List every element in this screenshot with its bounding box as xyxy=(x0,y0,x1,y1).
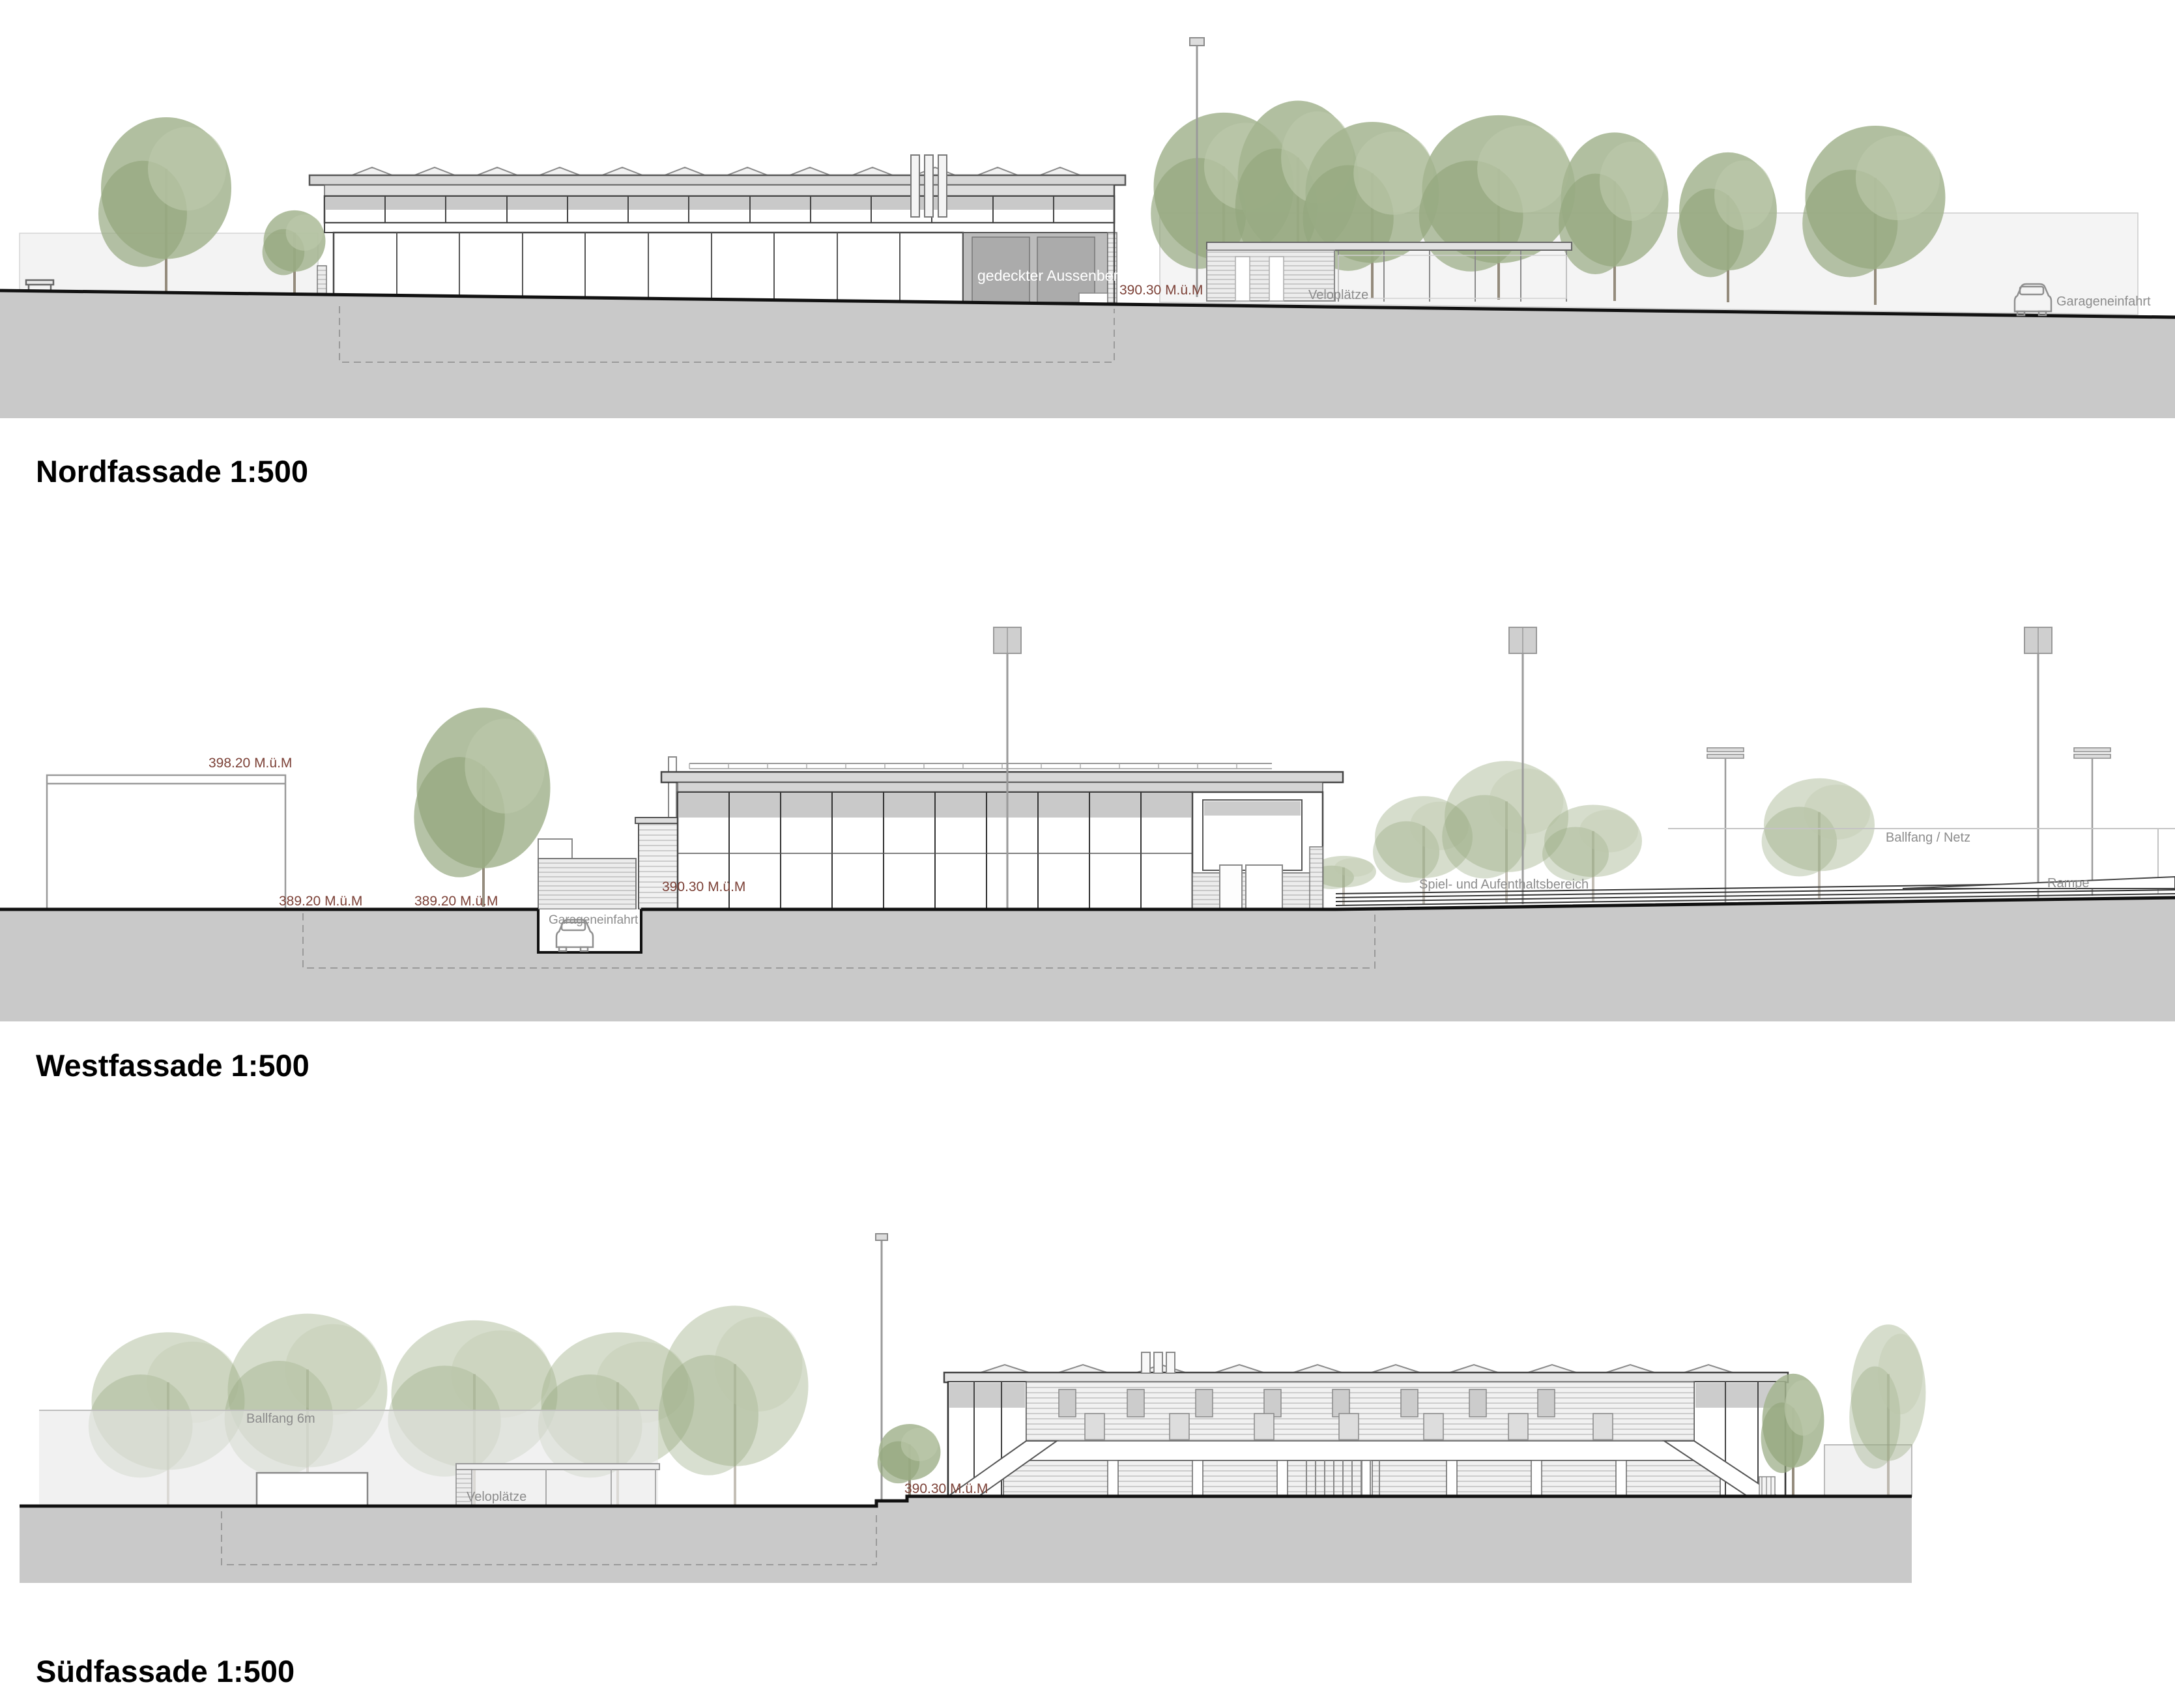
tree-crown xyxy=(1579,810,1638,853)
corner-slat xyxy=(317,266,326,297)
window xyxy=(1401,1389,1418,1417)
tree-crown xyxy=(465,719,545,814)
window xyxy=(1170,1414,1189,1440)
window xyxy=(1469,1389,1486,1417)
tree-crown xyxy=(901,1428,938,1461)
chimney xyxy=(669,757,676,819)
net-post-head xyxy=(1707,748,1744,752)
shelter-opening xyxy=(1235,257,1250,301)
label-level-39030-west: 390.30 M.ü.M xyxy=(662,879,745,894)
floor-slab xyxy=(324,223,1114,233)
roof-fascia xyxy=(661,772,1343,782)
wing-window-shade xyxy=(1204,801,1301,816)
label-garageneinfahrt-west: Garageneinfahrt xyxy=(549,913,639,927)
tree-crown xyxy=(1600,141,1664,221)
window xyxy=(1264,1389,1281,1417)
roof-band xyxy=(678,782,1323,792)
entry-glazing xyxy=(1246,865,1282,909)
label-spielbereich: Spiel- und Aufenthaltsbereich xyxy=(1419,877,1589,892)
roof-sawtooth xyxy=(352,167,1080,175)
tree-crown xyxy=(148,127,226,210)
ground-south xyxy=(20,1496,1912,1583)
window xyxy=(1508,1414,1528,1440)
title-nordfassade: Nordfassade 1:500 xyxy=(36,454,308,489)
column xyxy=(1447,1460,1457,1496)
window xyxy=(1196,1389,1213,1417)
small-outbuilding xyxy=(257,1473,367,1506)
label-garageneinfahrt-north: Garageneinfahrt xyxy=(2056,294,2151,309)
tree-crown xyxy=(286,214,323,251)
window xyxy=(1538,1389,1555,1417)
window xyxy=(1424,1414,1443,1440)
roof-band xyxy=(324,185,1114,196)
label-ballfang-netz: Ballfang / Netz xyxy=(1886,831,1970,845)
title-westfassade: Westfassade 1:500 xyxy=(36,1048,310,1083)
terrace-band xyxy=(1026,1441,1694,1460)
window xyxy=(1254,1414,1274,1440)
tree-crown xyxy=(1856,135,1940,220)
tree-crown xyxy=(1334,858,1374,877)
roof-sawtooth xyxy=(981,1365,1733,1373)
tree-crown xyxy=(1477,125,1569,212)
ballcatch-frame xyxy=(47,775,285,909)
label-level-39030-south: 390.30 M.ü.M xyxy=(904,1481,988,1496)
entry-door xyxy=(1220,865,1242,909)
column xyxy=(1108,1460,1118,1496)
slat-strip xyxy=(1310,847,1323,909)
window xyxy=(1332,1389,1349,1417)
label-rampe: Rampe xyxy=(2047,876,2089,890)
tree xyxy=(414,707,550,907)
net-post-head xyxy=(2074,754,2110,758)
tree-crown xyxy=(715,1317,803,1412)
tree xyxy=(659,1305,809,1505)
elevations-canvas: gedeckter Aussenbereich 390.30 M.ü.M Vel… xyxy=(0,0,2175,1708)
elevation-south-drawing: Ballfang 6m Veloplätze 390.30 M.ü.M Südf… xyxy=(20,1234,1926,1688)
roof-fascia xyxy=(944,1373,1788,1382)
facade-drawing-sheet: gedeckter Aussenbereich 390.30 M.ü.M Vel… xyxy=(0,0,2175,1708)
roof-chimneys xyxy=(1142,1352,1175,1373)
shelter-canopy xyxy=(456,1464,659,1470)
net-post-head xyxy=(2074,748,2110,752)
label-level-38920-a: 389.20 M.ü.M xyxy=(279,894,362,909)
column xyxy=(1616,1460,1626,1496)
tree-crown xyxy=(1714,160,1773,230)
sawtooth xyxy=(352,167,1080,175)
window xyxy=(1593,1414,1613,1440)
column xyxy=(1277,1460,1288,1496)
label-level-38920-b: 389.20 M.ü.M xyxy=(414,894,498,909)
garage-housing xyxy=(538,839,636,909)
roof-chimneys xyxy=(911,155,947,217)
tree-crown xyxy=(1804,784,1870,839)
label-level-39030-north: 390.30 M.ü.M xyxy=(1119,283,1203,298)
title-suedfassade: Südfassade 1:500 xyxy=(36,1654,295,1688)
roof-pv-row xyxy=(689,763,1272,769)
window xyxy=(1127,1389,1144,1417)
elevation-west-drawing: 398.20 M.ü.M 389.20 M.ü.M 389.20 M.ü.M 3… xyxy=(0,627,2175,1083)
shelter-canopy xyxy=(1207,242,1572,250)
label-ballfang-6m: Ballfang 6m xyxy=(246,1412,315,1426)
roof-fascia xyxy=(310,175,1125,185)
shelter-opening xyxy=(1269,257,1284,301)
label-veloplaetze-south: Veloplätze xyxy=(467,1490,526,1504)
tree-crown xyxy=(1878,1334,1923,1415)
elevation-north-drawing: gedeckter Aussenbereich 390.30 M.ü.M Vel… xyxy=(0,38,2175,489)
slat-fence xyxy=(1759,1477,1775,1496)
tree xyxy=(1762,778,1875,899)
column xyxy=(1531,1460,1542,1496)
window xyxy=(1339,1414,1359,1440)
window xyxy=(1085,1414,1104,1440)
label-level-39820: 398.20 M.ü.M xyxy=(209,756,292,771)
tree-crown xyxy=(451,1330,551,1417)
sawtooth xyxy=(981,1365,1733,1373)
tree-crown xyxy=(285,1324,381,1415)
window xyxy=(1059,1389,1076,1417)
upper-window-shade xyxy=(326,197,1113,210)
label-veloplaetze-north: Veloplätze xyxy=(1308,288,1368,302)
label-covered-area: gedeckter Aussenbereich xyxy=(977,267,1145,284)
tree-crown xyxy=(1785,1380,1822,1436)
column xyxy=(1192,1460,1203,1496)
building-south xyxy=(944,1352,1788,1496)
ground-west xyxy=(0,898,2175,1021)
net-post-head xyxy=(1707,754,1744,758)
